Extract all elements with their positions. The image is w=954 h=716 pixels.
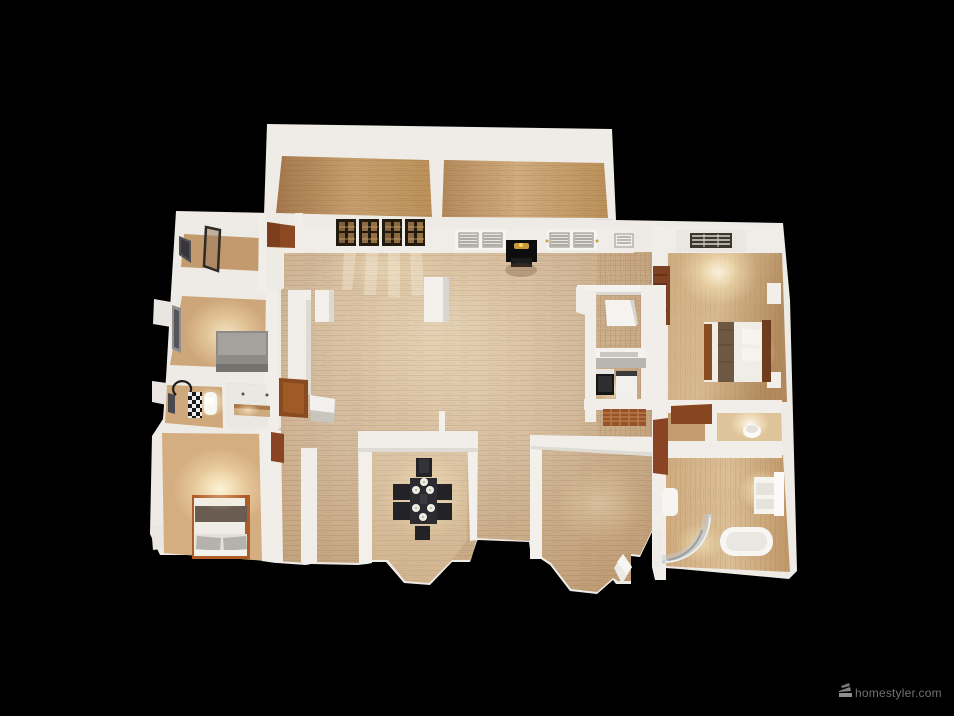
svg-text:homestyler.com: homestyler.com [855,686,942,700]
